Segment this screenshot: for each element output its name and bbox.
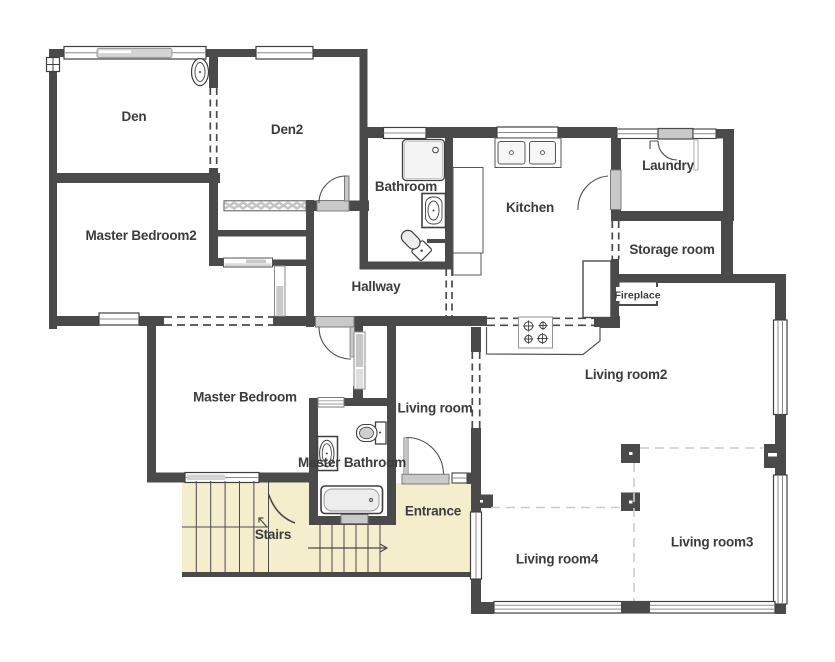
svg-text:Hallway: Hallway [352,279,402,294]
svg-text:Master Bathroom: Master Bathroom [298,455,406,470]
svg-text:Living room: Living room [397,401,472,416]
svg-text:Den: Den [122,109,147,124]
svg-text:Storage room: Storage room [629,242,715,257]
svg-text:Bathroom: Bathroom [375,179,437,194]
svg-text:Den2: Den2 [271,122,303,137]
svg-text:Master Bedroom2: Master Bedroom2 [85,228,196,243]
svg-text:Master Bedroom: Master Bedroom [193,390,297,405]
svg-text:Living room2: Living room2 [585,367,667,382]
svg-text:Kitchen: Kitchen [506,200,554,215]
svg-text:Fireplace: Fireplace [614,290,660,302]
svg-text:Entrance: Entrance [405,504,462,519]
svg-text:Laundry: Laundry [642,158,695,173]
svg-text:Stairs: Stairs [255,527,291,542]
svg-text:Living room4: Living room4 [516,552,599,567]
svg-text:Living room3: Living room3 [671,535,754,550]
